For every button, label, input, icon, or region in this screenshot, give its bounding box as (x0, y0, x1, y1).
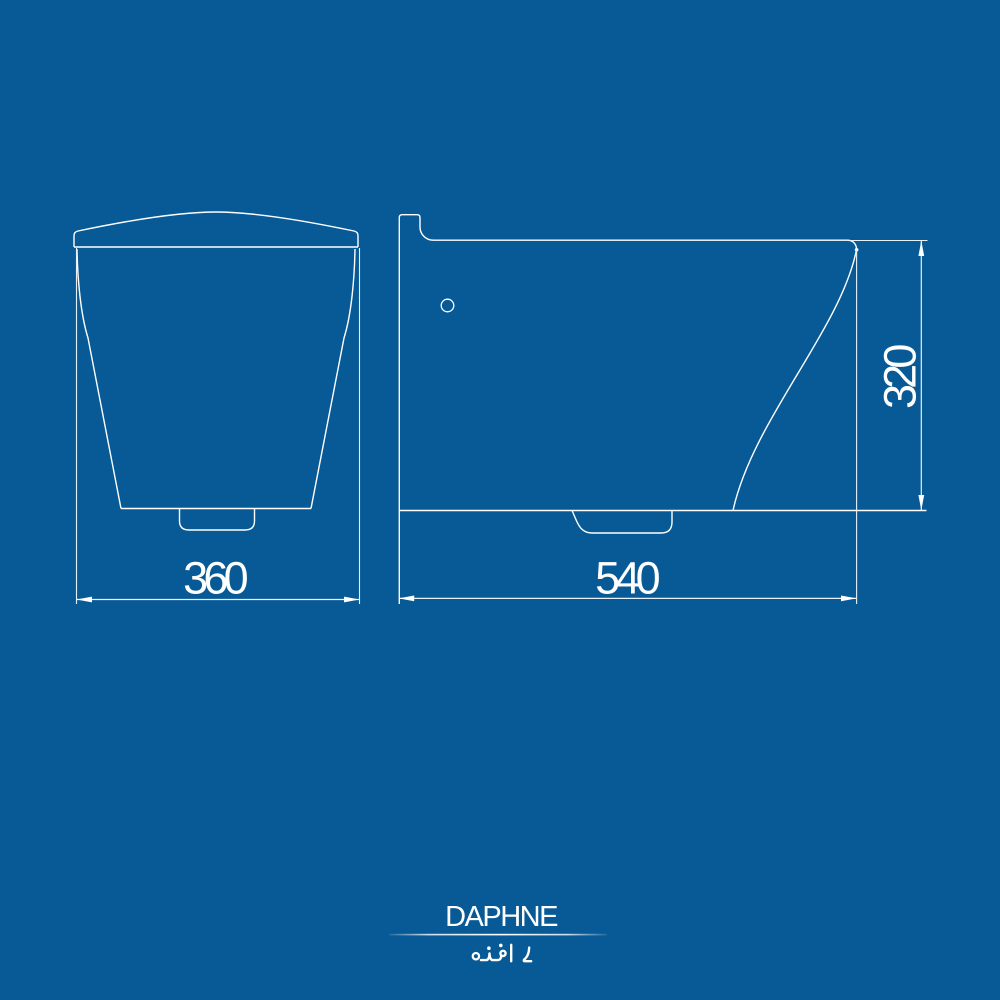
svg-text:360: 360 (183, 553, 247, 604)
svg-text:320: 320 (875, 345, 926, 409)
svg-text:540: 540 (595, 553, 659, 604)
svg-text:DAPHNE: DAPHNE (445, 901, 558, 933)
